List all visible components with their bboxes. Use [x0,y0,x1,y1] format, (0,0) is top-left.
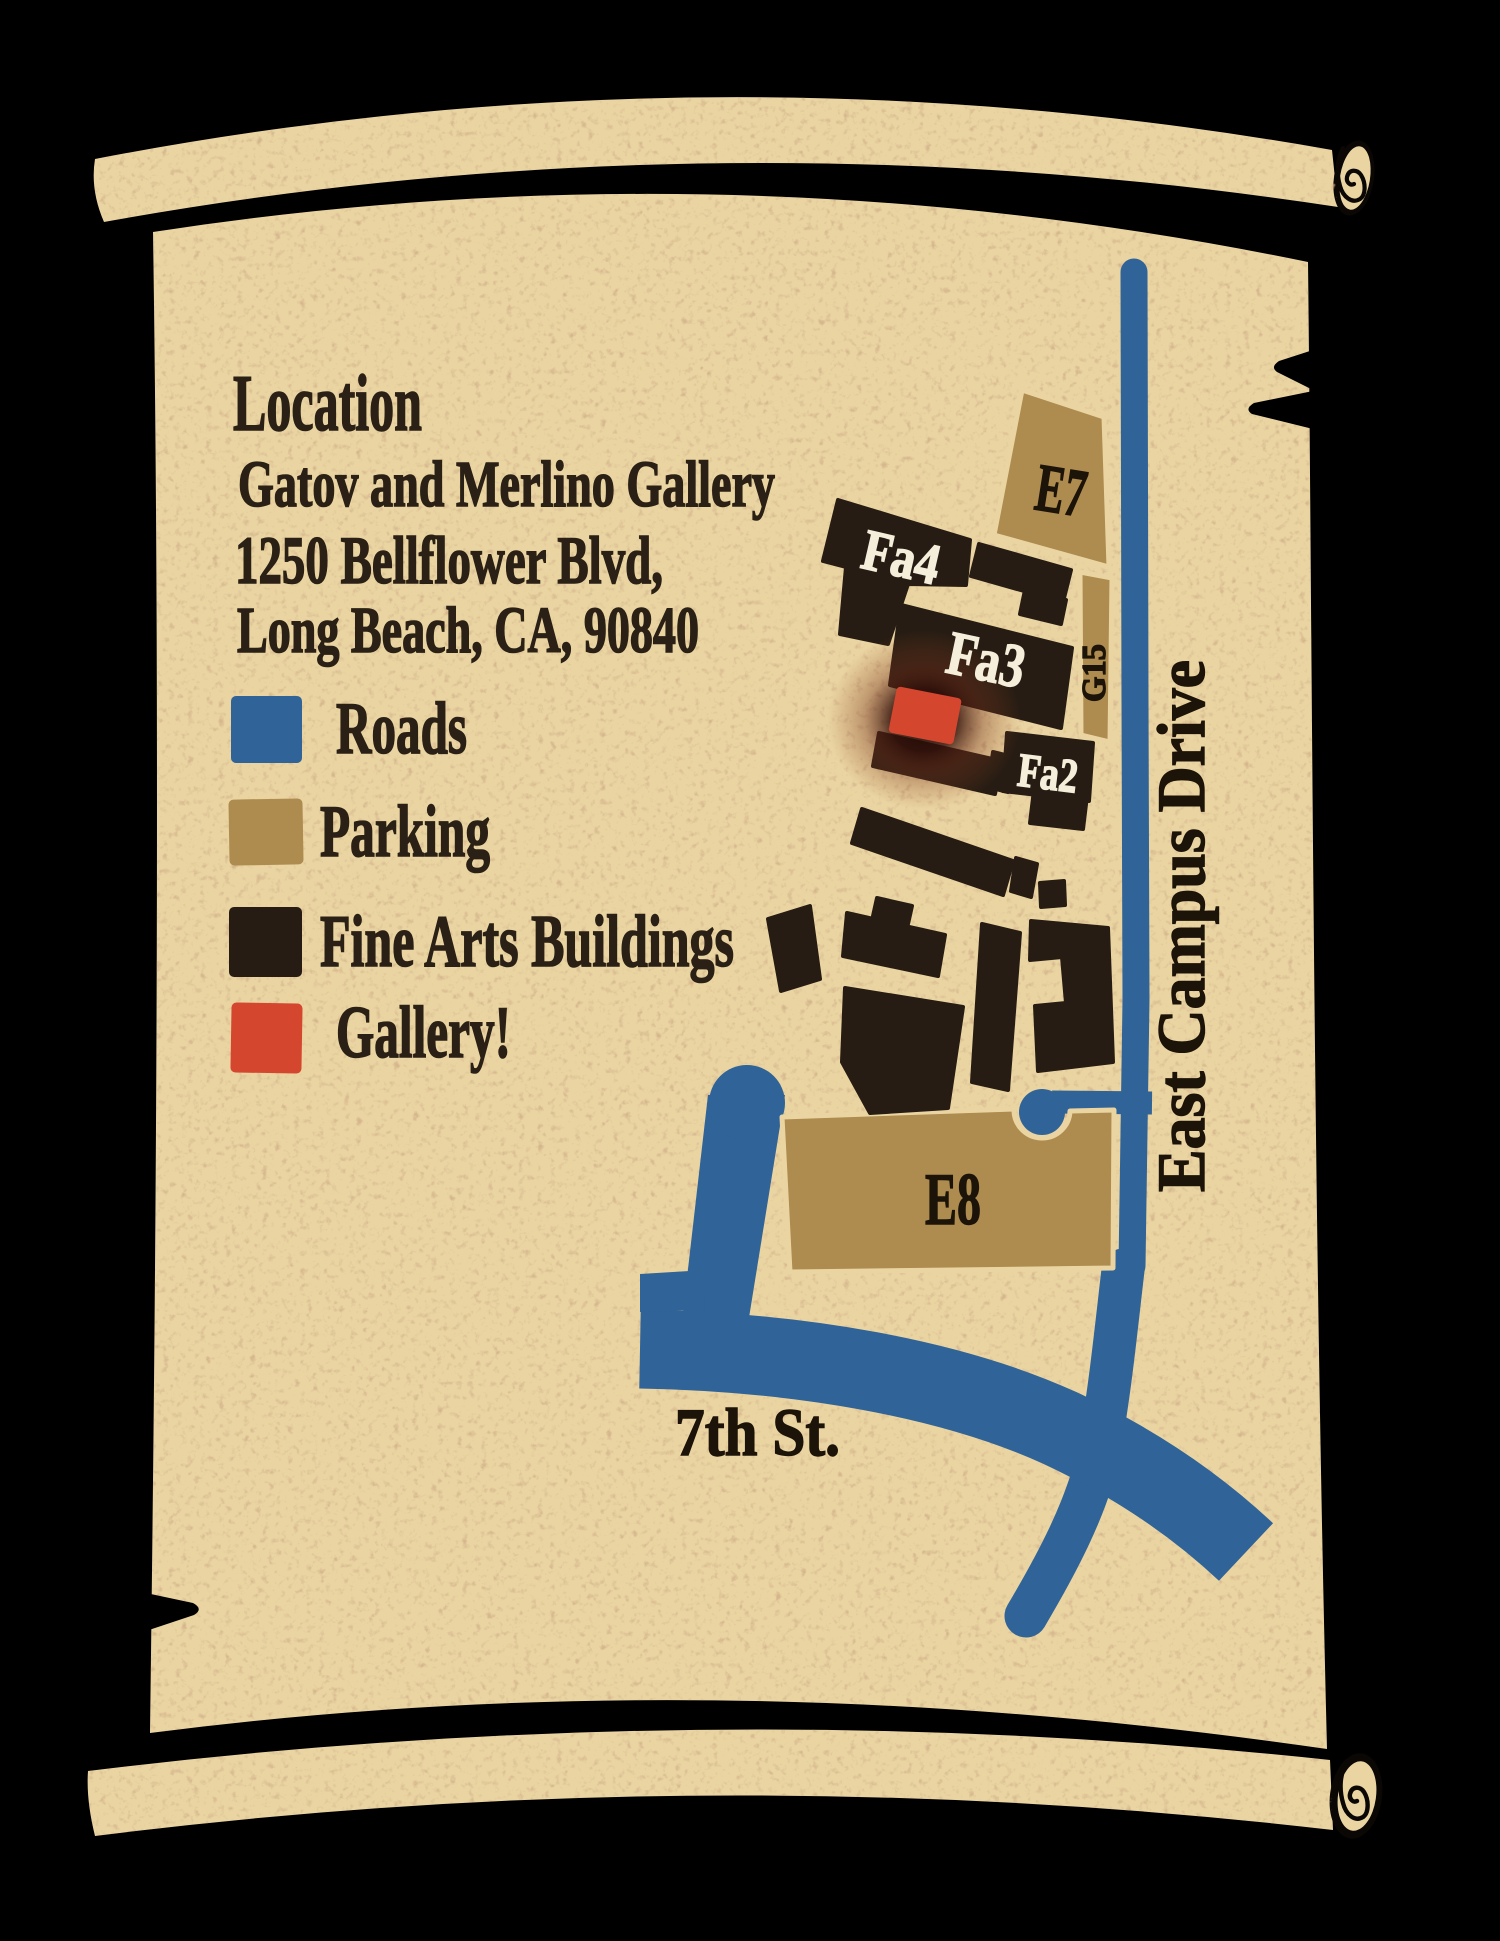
svg-text:Long Beach, CA, 90840: Long Beach, CA, 90840 [237,594,699,667]
svg-text:Roads: Roads [336,688,467,770]
svg-text:Gallery!: Gallery! [336,992,511,1074]
svg-text:E8: E8 [925,1159,981,1241]
svg-text:Fine Arts Buildings: Fine Arts Buildings [320,901,734,983]
svg-text:G15: G15 [1076,644,1113,702]
svg-text:Parking: Parking [320,791,490,873]
svg-text:Location: Location [233,360,422,448]
svg-text:Fa2: Fa2 [1015,744,1081,804]
svg-text:7th St.: 7th St. [675,1394,840,1470]
svg-text:East Campus Drive: East Campus Drive [1143,660,1219,1192]
svg-text:Gatov and Merlino Gallery: Gatov and Merlino Gallery [238,448,775,521]
svg-text:1250 Bellflower Blvd,: 1250 Bellflower Blvd, [235,522,663,598]
